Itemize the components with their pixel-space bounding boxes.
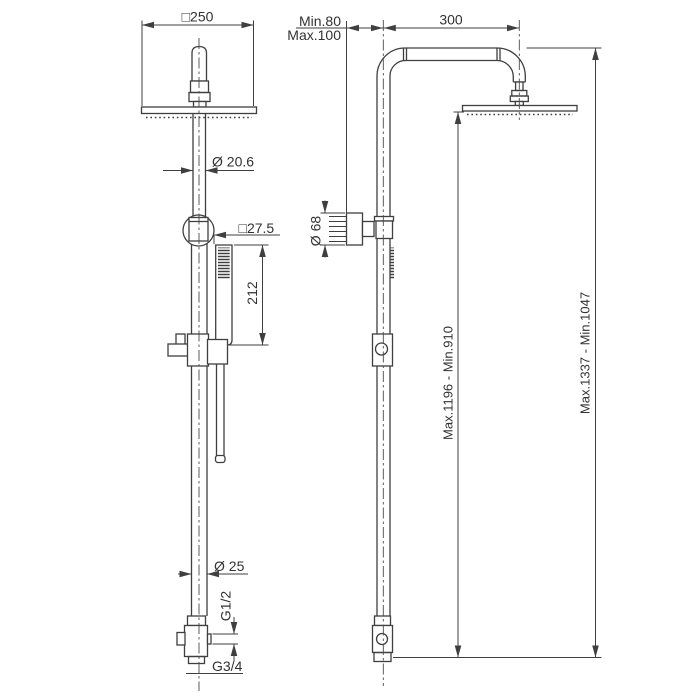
diverter-valve-front [177,616,211,664]
in-wall-supply-hatch [329,217,347,242]
shower-column-technical-drawing: □250 Ø 20.6 □27.5 [0,0,700,700]
slider-side [373,334,393,366]
diverter-valve-side [373,616,393,662]
hand-shower [216,245,232,345]
dim-label-side-outlet-thread: G1/2 [218,591,234,622]
dim-label-arm-projection: 300 [439,12,463,28]
dim-label-handshower-length: 212 [244,281,260,305]
holder-clamp [188,334,209,366]
dim-side-outlet-thread: G1/2 [213,591,239,661]
shower-arm-side [377,48,525,82]
shower-hose [216,362,226,463]
dim-height-overall: Max.1337 - Min.1047 [393,48,602,658]
handshower-cradle [208,340,228,365]
valve-top-thread-front [188,616,206,626]
hand-shower-spray-face [218,248,230,280]
valve-bottom-thread-side [374,653,391,662]
holder-handle [168,344,189,356]
dim-wall-distance: Min.80 Max.100 [287,13,519,213]
wall-bracket-side [329,213,394,245]
valve-knob-side [377,634,388,645]
hose-end-cap [216,456,226,463]
dim-label-handshower-section: □27.5 [239,220,275,236]
head-connector-nut [189,93,210,102]
dim-label-bottom-inlet-thread: G3/4 [212,658,243,674]
side-view: Min.80 Max.100 300 Ø 68 [287,12,601,687]
dim-upper-pipe-diameter: Ø 20.6 [163,154,254,171]
dim-height-head-underside: Max.1196 - Min.910 [441,112,465,658]
dim-handshower-section: □27.5 [214,220,280,244]
dim-bracket-diameter: Ø 68 [308,201,346,258]
dim-arm-projection: 300 [384,12,519,29]
valve-knob-front [177,633,185,646]
dim-label-bracket-diameter: Ø 68 [308,216,324,247]
dim-label-wall-distance-max: Max.100 [287,27,341,43]
dim-column-diameter: Ø 25 [178,558,248,574]
valve-side-port [208,634,212,644]
bracket-stem-side [363,222,375,237]
dim-label-head-width: □250 [182,9,214,25]
valve-body-front [185,626,208,657]
holder-knob-side [376,343,388,355]
valve-bottom-thread-front [189,657,205,664]
dim-label-upper-pipe-diameter: Ø 20.6 [212,154,254,170]
front-view: □250 Ø 20.6 □27.5 [142,9,281,692]
dim-handshower-length: 212 [229,245,269,345]
hand-shower-side-ribs [391,248,395,279]
dim-bottom-inlet-thread: G3/4 [186,658,243,674]
dim-label-height-head-underside: Max.1196 - Min.910 [441,326,456,440]
dim-label-height-overall: Max.1337 - Min.1047 [578,292,593,414]
dim-label-column-diameter: Ø 25 [214,558,245,574]
bracket-flange-side [347,213,363,245]
technical-drawing-page: □250 Ø 20.6 □27.5 [0,0,700,700]
wall-bracket-front [183,215,214,246]
bracket-nut-side [376,221,393,239]
valve-top-thread-side [375,616,391,626]
